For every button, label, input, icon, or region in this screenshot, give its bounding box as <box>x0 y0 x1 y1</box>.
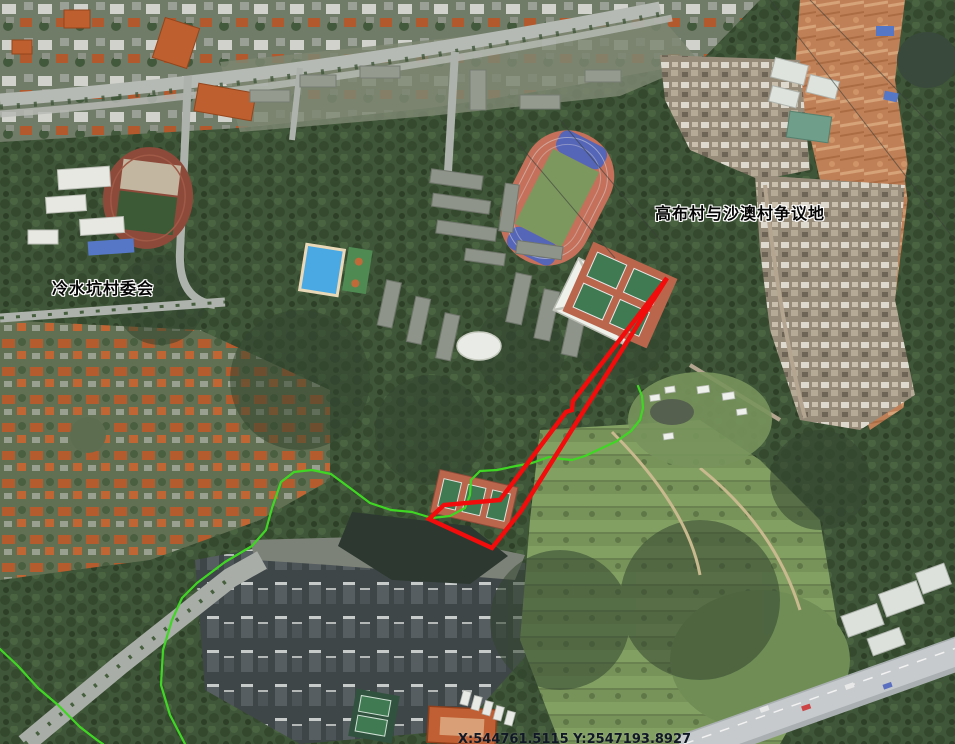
boundary-line-west <box>0 649 103 744</box>
map-canvas[interactable]: 冷水坑村委会 高布村与沙澳村争议地 X:544761.5115 Y:254719… <box>0 0 955 744</box>
coordinate-readout: X:544761.5115 Y:2547193.8927 <box>458 732 691 744</box>
boundary-line-main <box>161 386 643 744</box>
label-disputed-land: 高布村与沙澳村争议地 <box>655 206 825 222</box>
label-lengshuikeng-village-committee: 冷水坑村委会 <box>52 281 154 297</box>
annotation-overlay <box>0 0 955 744</box>
